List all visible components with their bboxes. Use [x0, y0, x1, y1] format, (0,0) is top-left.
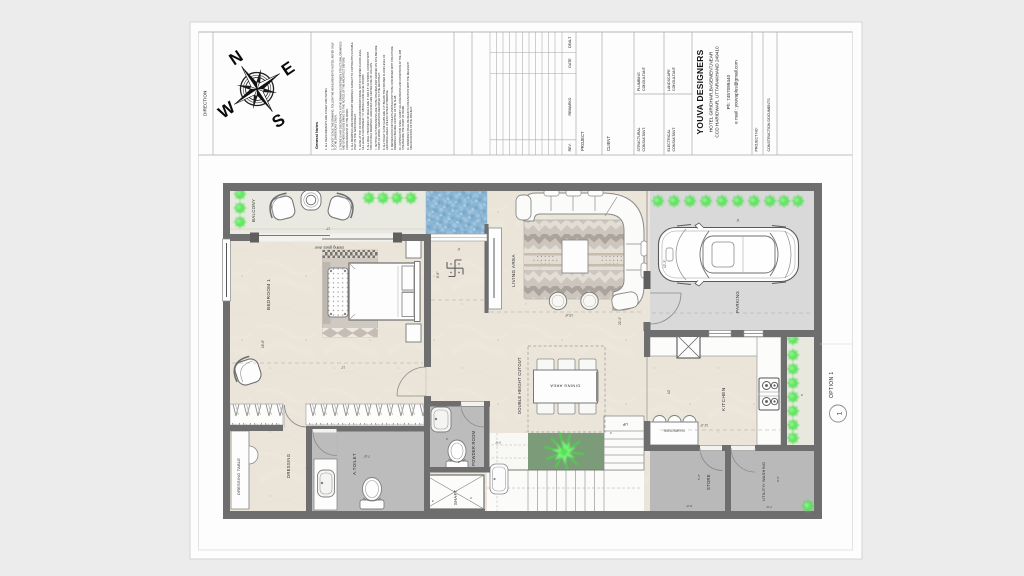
svg-text:6'-8": 6'-8" [686, 504, 692, 508]
svg-text:SILL LEVELS MAINTAINED 7'-0" A: SILL LEVELS MAINTAINED 7'-0" ABOVE FLOOR… [361, 74, 365, 150]
svg-text:DRESSING TABLE: DRESSING TABLE [236, 458, 241, 495]
svg-text:CONSTRUCTION DOCUMENTS: CONSTRUCTION DOCUMENTS [767, 98, 771, 152]
svg-text:sliding glass door: sliding glass door [314, 246, 344, 250]
svg-text:1: 1 [836, 411, 843, 415]
svg-text:LANDSCAPE: LANDSCAPE [667, 69, 671, 91]
svg-text:BALCONY: BALCONY [251, 199, 256, 222]
svg-text:22'-4": 22'-4" [618, 317, 622, 325]
svg-text:SITE BEFORE THE START OF WORK.: SITE BEFORE THE START OF WORK. [401, 105, 405, 150]
svg-text:DOUBLE HEIGHT CUTOUT: DOUBLE HEIGHT CUTOUT [517, 357, 522, 414]
svg-text:REV.: REV. [568, 143, 572, 151]
svg-text:Ph: 7457099440: Ph: 7457099440 [726, 74, 731, 109]
svg-text:8': 8' [736, 218, 739, 222]
svg-text:DATE: DATE [568, 58, 572, 68]
svg-text:UTILITY/ WASHING: UTILITY/ WASHING [761, 462, 766, 501]
svg-text:SHAFT: SHAFT [453, 490, 458, 505]
svg-text:CONSULTANT:: CONSULTANT: [672, 127, 676, 152]
svg-text:CCD HARIDWAR, UTTARAKHAND 2494: CCD HARIDWAR, UTTARAKHAND 249410 [715, 46, 720, 138]
svg-text:7'-6": 7'-6" [364, 454, 370, 458]
svg-text:DEALT: DEALT [568, 36, 572, 48]
svg-text:1. ALL MEASUREMENTS ARE IN FE: 1. ALL MEASUREMENTS ARE IN FEET AND INCH… [324, 88, 328, 150]
svg-text:CLIENT: CLIENT [606, 136, 611, 151]
svg-text:e mail : youvaplus@gmail.com: e mail : youvaplus@gmail.com [734, 60, 739, 124]
svg-text:START OF WORK, VARIATIONS REPO: START OF WORK, VARIATIONS REPORTED TO TH… [377, 72, 381, 150]
svg-text:9'-5": 9'-5" [776, 476, 780, 482]
svg-text:STRUCTURAL: STRUCTURAL [637, 127, 641, 151]
svg-text:BEDROOM 1: BEDROOM 1 [266, 279, 271, 310]
svg-text:PROJECT: PROJECT [580, 131, 585, 151]
svg-text:16'-8": 16'-8" [261, 340, 265, 348]
svg-text:PARKING: PARKING [735, 291, 740, 313]
svg-text:PLUMBING: PLUMBING [637, 72, 641, 91]
svg-text:6': 6' [457, 247, 460, 251]
svg-text:TO THE DIMENSIONS GIVEN.: TO THE DIMENSIONS GIVEN. [334, 114, 338, 150]
svg-text:YOUVA DESIGNERS: YOUVA DESIGNERS [695, 49, 705, 134]
svg-text:CONSULTANT:: CONSULTANT: [642, 66, 646, 91]
svg-text:REMARKS: REMARKS [568, 97, 572, 115]
svg-text:10': 10' [667, 389, 671, 394]
svg-text:ONLY ON THE SAID PROJECT.: ONLY ON THE SAID PROJECT. [353, 113, 357, 150]
svg-text:STRUCTURAL DRAWINGS. GRID LINE: STRUCTURAL DRAWINGS. GRID LINES ARE CENT… [369, 62, 373, 150]
svg-text:CONSULTANT:: CONSULTANT: [672, 66, 676, 91]
svg-text:HOTEL GIRIDHAR,BASEMENT,NEAR: HOTEL GIRIDHAR,BASEMENT,NEAR [709, 51, 714, 132]
svg-text:DRAWINGS BEFORE CASTING OF THE: DRAWINGS BEFORE CASTING OF THE SLAB. [393, 95, 397, 150]
svg-text:ADJOINING AREAS UNLESS NOTED O: ADJOINING AREAS UNLESS NOTED OTHERWISE. [385, 89, 389, 150]
svg-text:STORE: STORE [706, 474, 711, 490]
svg-text:A.TOILET: A.TOILET [352, 453, 357, 475]
svg-text:KITCHEN: KITCHEN [721, 387, 726, 411]
svg-text:17': 17' [340, 365, 345, 369]
svg-text:12'-3": 12'-3" [663, 260, 667, 268]
svg-text:breakfast table: breakfast table [663, 429, 684, 433]
svg-text:PROJECT NO:: PROJECT NO: [755, 127, 759, 151]
svg-text:5'-0": 5'-0" [697, 474, 701, 480]
svg-text:11'-0": 11'-0" [700, 423, 708, 427]
svg-text:DRESSING: DRESSING [286, 454, 291, 478]
svg-text:7'-6": 7'-6" [766, 505, 772, 509]
svg-text:ELECTRICAL: ELECTRICAL [667, 129, 671, 151]
svg-text:DIRECTION: DIRECTION [203, 91, 208, 116]
svg-text:CONSULTANT:: CONSULTANT: [642, 127, 646, 152]
svg-text:General Notes: General Notes [314, 121, 319, 149]
svg-text:SPECIFICATIONS OF THE PROJECT.: SPECIFICATIONS OF THE PROJECT. [409, 106, 413, 150]
svg-text:LIVING AREA: LIVING AREA [511, 253, 516, 287]
svg-text:COMMENCEMENT OF THE WORK.: COMMENCEMENT OF THE WORK. [345, 108, 349, 150]
svg-text:6'-8": 6'-8" [436, 272, 440, 278]
svg-text:17': 17' [325, 227, 330, 231]
svg-text:3'-6": 3'-6" [495, 441, 501, 445]
svg-text:UP: UP [622, 422, 628, 426]
svg-text:13'-6": 13'-6" [565, 313, 573, 317]
svg-text:DINING AREA: DINING AREA [550, 384, 580, 389]
svg-text:OPTION 1: OPTION 1 [829, 371, 835, 398]
svg-text:POWDER ROOM: POWDER ROOM [471, 430, 476, 466]
